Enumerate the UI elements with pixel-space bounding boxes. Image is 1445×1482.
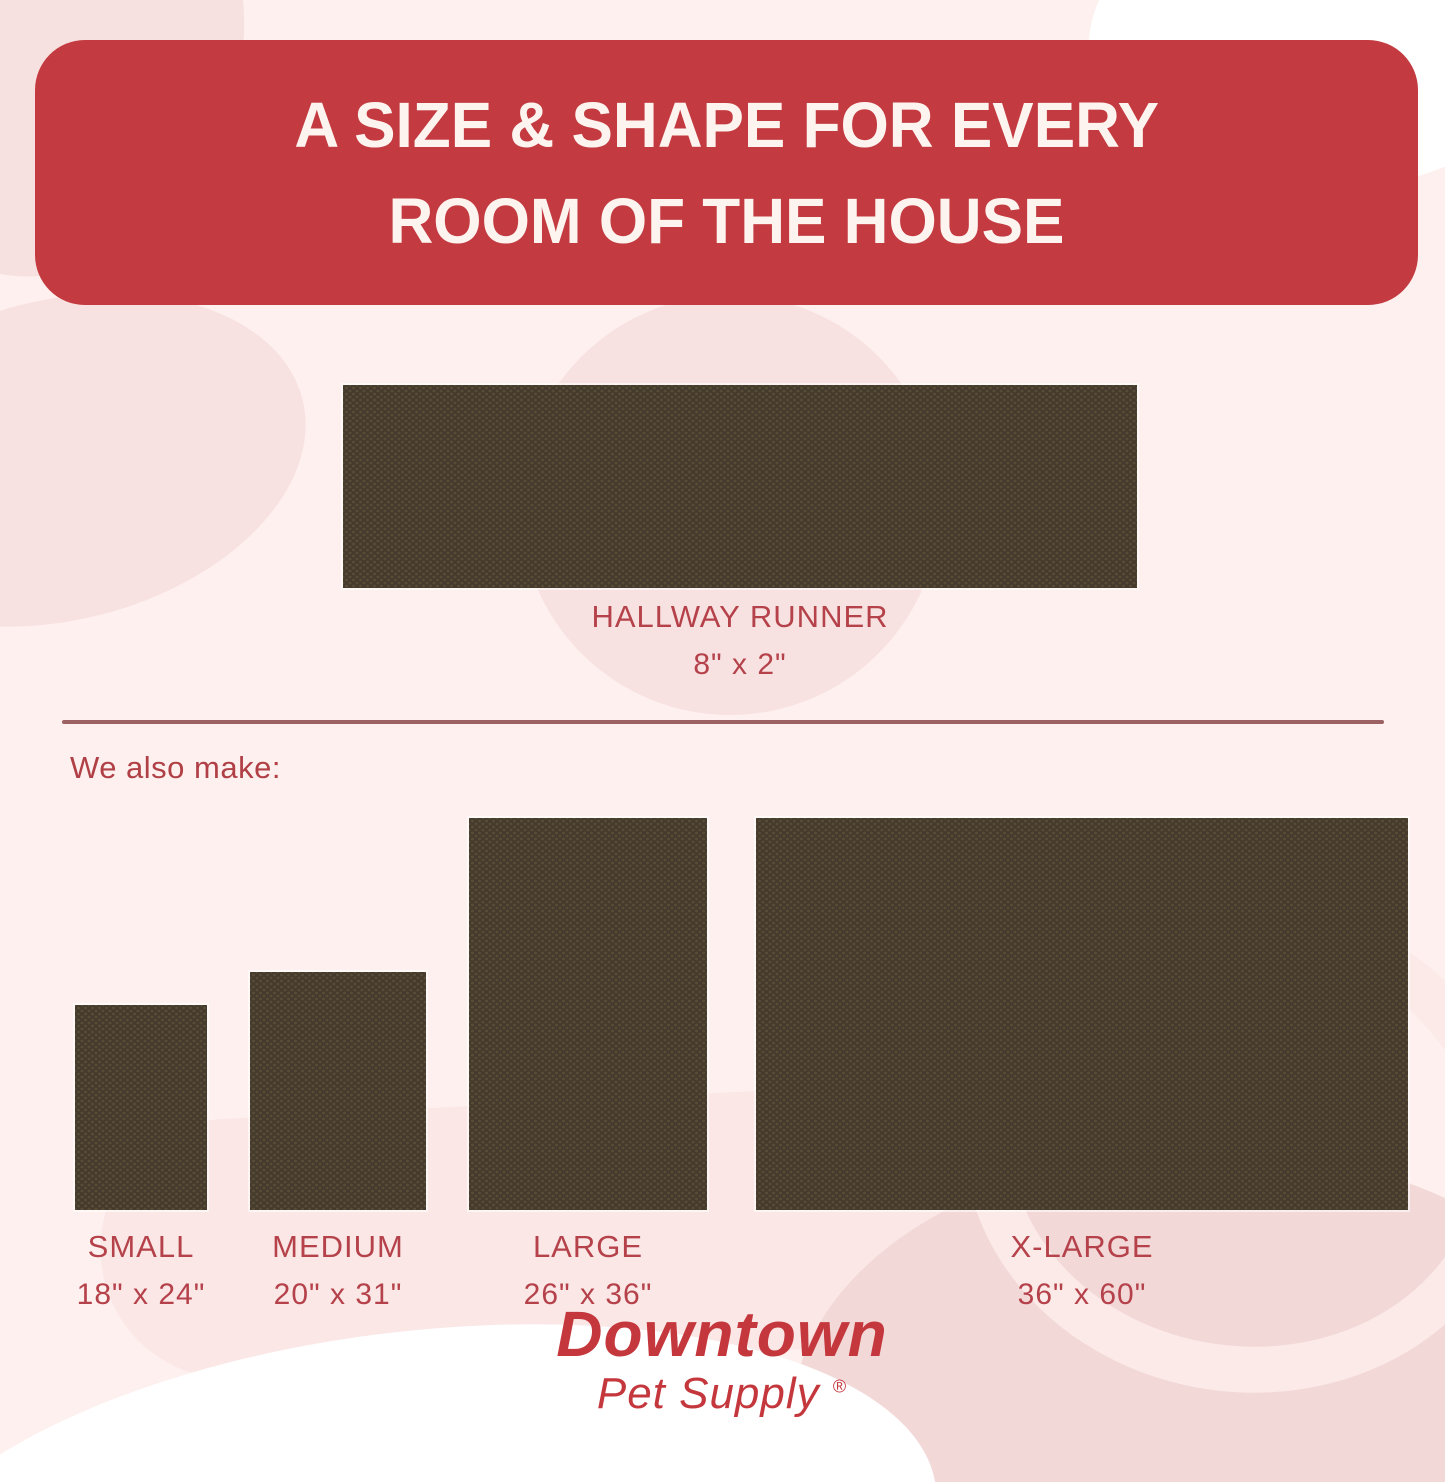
medium-name: MEDIUM [238,1228,438,1265]
brand-name-text: Downtown [422,1302,1022,1366]
mat-swatch-xlarge [756,818,1408,1210]
mat-swatch-medium [250,972,426,1210]
header-title-line1: A SIZE & SHAPE FOR EVERY [294,77,1159,173]
small-name: SMALL [41,1228,241,1265]
xlarge-label: X-LARGE 36" x 60" [982,1228,1182,1313]
background-blob-left-mid [0,244,341,675]
small-label: SMALL 18" x 24" [41,1228,241,1313]
hallway-runner-name: HALLWAY RUNNER [440,598,1040,635]
infographic-canvas: A SIZE & SHAPE FOR EVERY ROOM OF THE HOU… [0,0,1445,1482]
medium-label: MEDIUM 20" x 31" [238,1228,438,1313]
header-banner: A SIZE & SHAPE FOR EVERY ROOM OF THE HOU… [35,40,1418,305]
also-make-text: We also make: [70,750,281,786]
brand-subtitle-label: Pet Supply [597,1369,820,1418]
mat-swatch-hallway-runner [343,385,1137,588]
xlarge-name: X-LARGE [982,1228,1182,1265]
brand-subtitle-text: Pet Supply ® [422,1372,1022,1416]
hallway-runner-label: HALLWAY RUNNER 8" x 2" [440,598,1040,683]
mat-swatch-large [469,818,707,1210]
medium-dimensions: 20" x 31" [238,1277,438,1313]
brand-logo: Downtown Pet Supply ® [422,1302,1022,1416]
small-dimensions: 18" x 24" [41,1277,241,1313]
section-divider [62,720,1384,724]
mat-swatch-small [75,1005,207,1210]
hallway-runner-dimensions: 8" x 2" [440,647,1040,683]
large-name: LARGE [488,1228,688,1265]
header-title-line2: ROOM OF THE HOUSE [389,173,1065,269]
registered-trademark-symbol: ® [833,1376,847,1396]
